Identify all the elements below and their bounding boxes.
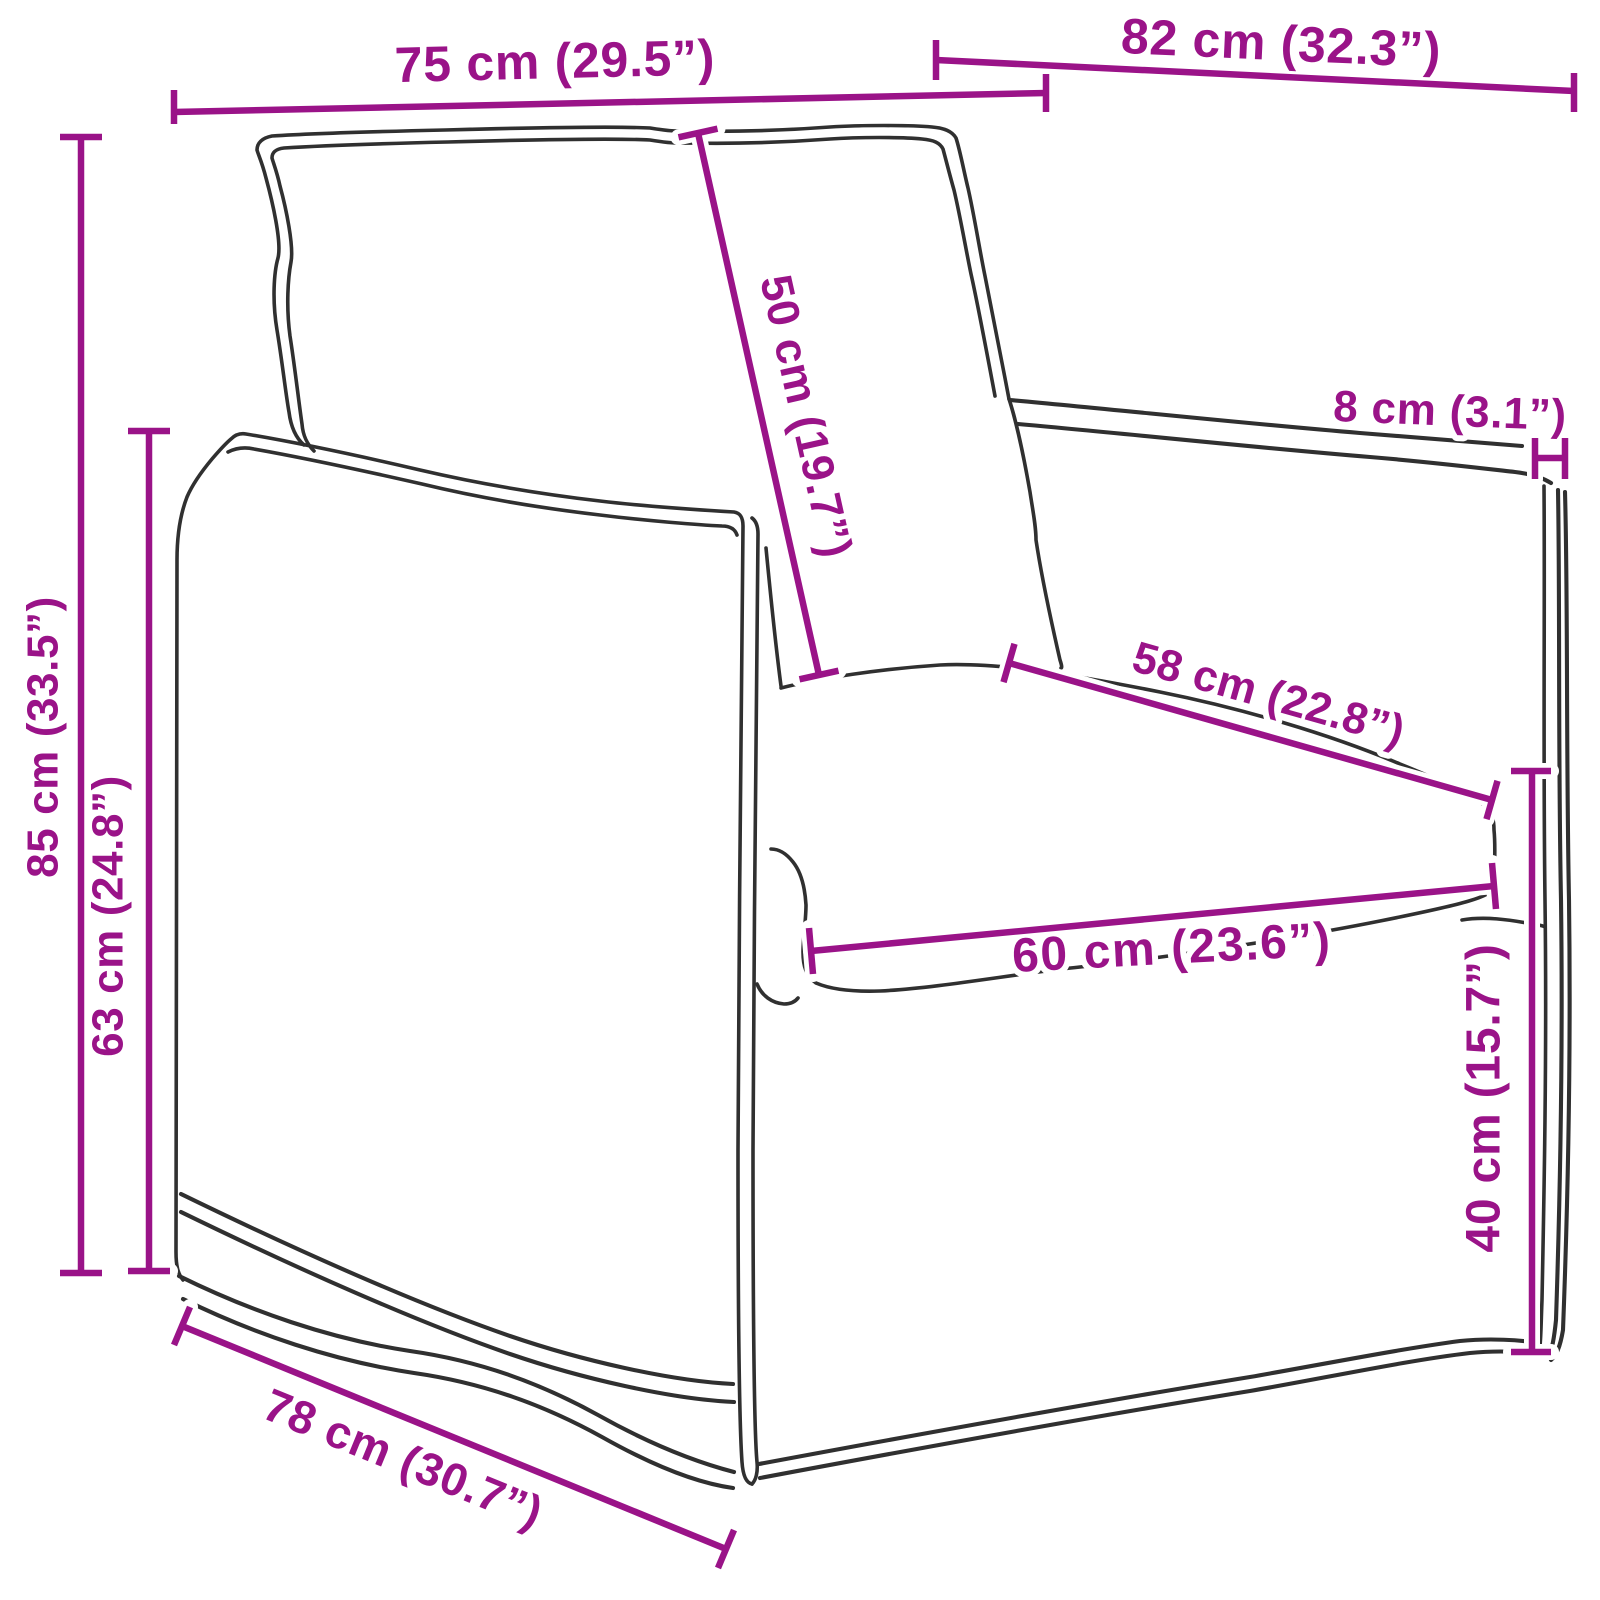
svg-text:8 cm (3.1”): 8 cm (3.1”) <box>1332 382 1568 440</box>
svg-text:40 cm (15.7”): 40 cm (15.7”) <box>1458 943 1511 1252</box>
svg-text:75 cm (29.5”): 75 cm (29.5”) <box>394 29 716 93</box>
svg-text:85 cm (33.5”): 85 cm (33.5”) <box>19 596 68 878</box>
svg-text:63 cm (24.8”): 63 cm (24.8”) <box>84 775 133 1057</box>
